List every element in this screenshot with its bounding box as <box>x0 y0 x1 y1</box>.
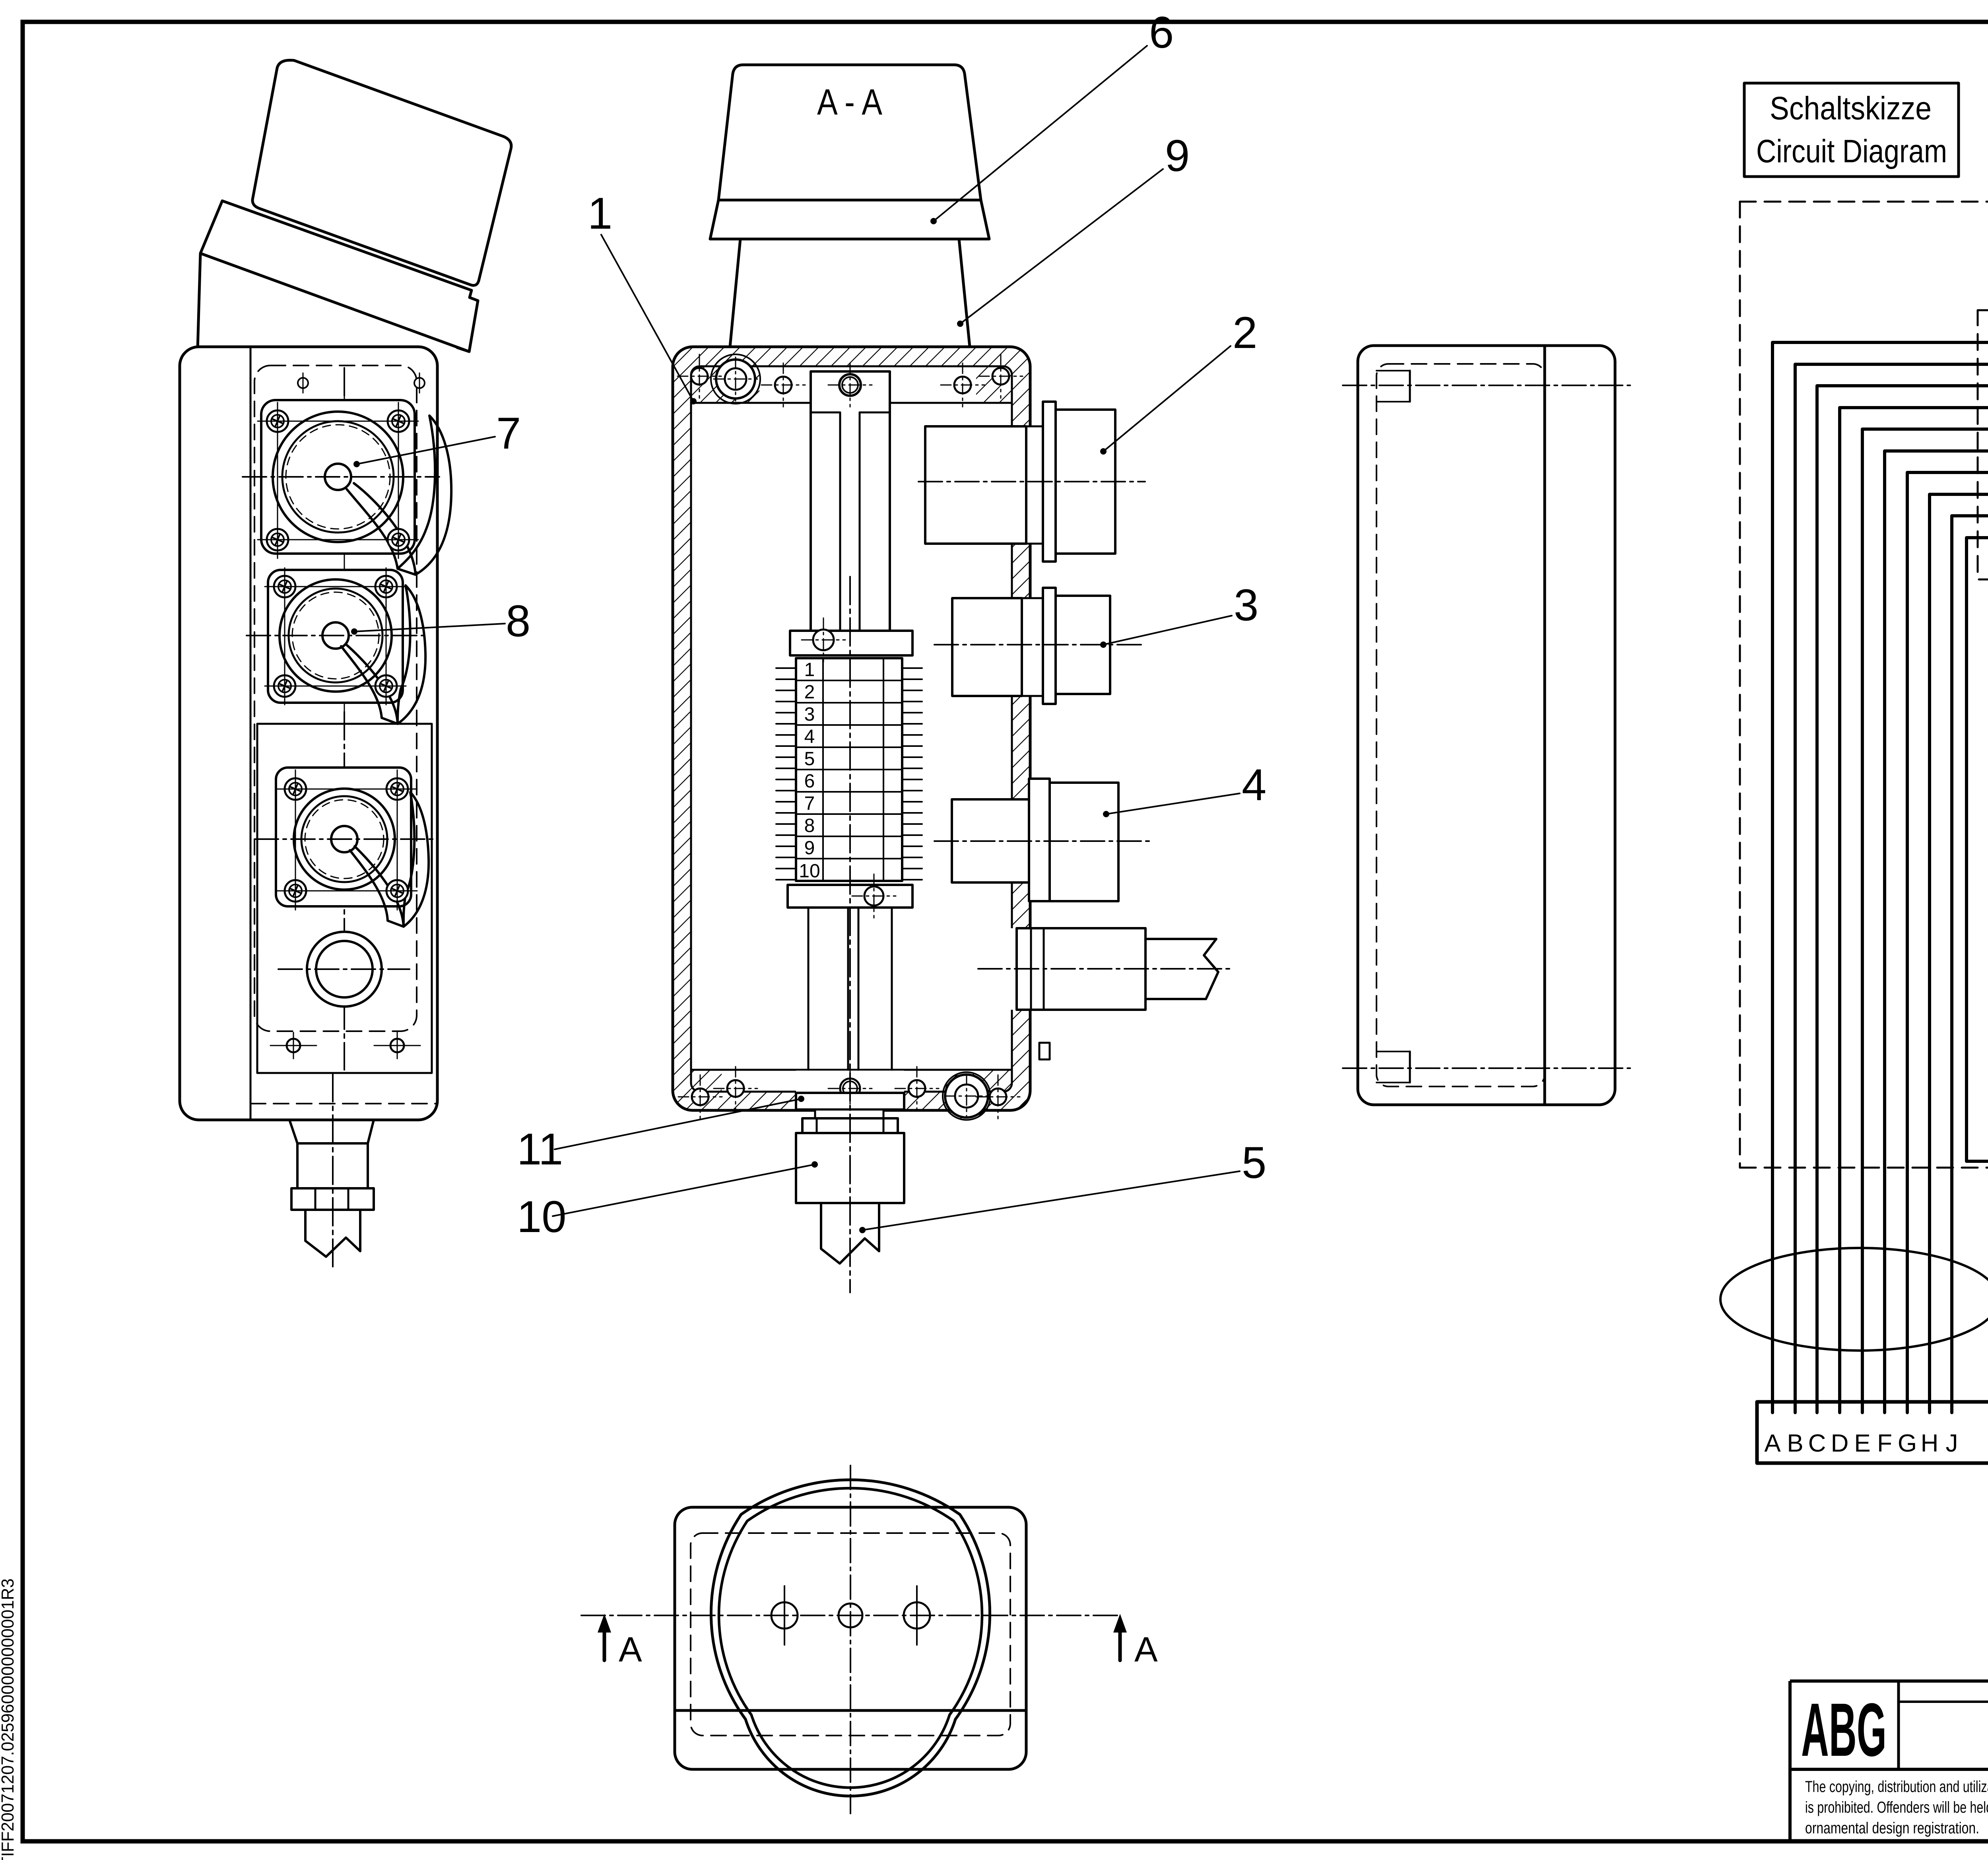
svg-text:4: 4 <box>804 726 815 747</box>
svg-text:A: A <box>619 1630 642 1669</box>
svg-text:7: 7 <box>804 793 815 814</box>
svg-text:10: 10 <box>517 1192 567 1242</box>
svg-text:1: 1 <box>804 659 815 680</box>
svg-text:7: 7 <box>496 408 521 458</box>
svg-text:H: H <box>1921 1430 1939 1457</box>
svg-text:J: J <box>1946 1430 1958 1457</box>
svg-text:5: 5 <box>804 748 815 770</box>
svg-text:Schaltskizze: Schaltskizze <box>1770 90 1932 126</box>
svg-text:2: 2 <box>804 682 815 703</box>
svg-text:5: 5 <box>1242 1138 1266 1188</box>
svg-text:6: 6 <box>1149 8 1174 57</box>
svg-text:8: 8 <box>804 815 815 836</box>
svg-text:1: 1 <box>588 189 612 238</box>
svg-text:9: 9 <box>804 838 815 859</box>
svg-text:ornamental design registration: ornamental design registration. <box>1805 1819 1979 1837</box>
svg-text:2: 2 <box>1233 308 1257 358</box>
svg-text:D: D <box>1831 1430 1849 1457</box>
svg-text:A: A <box>1134 1630 1158 1669</box>
svg-text:The copying, distribution and: The copying, distribution and utilizatio… <box>1805 1778 1988 1796</box>
svg-text:9: 9 <box>1165 131 1190 181</box>
svg-text:G: G <box>1898 1430 1917 1457</box>
svg-text:A - A: A - A <box>817 82 883 122</box>
svg-text:3: 3 <box>804 704 815 725</box>
svg-text:ABG: ABG <box>1801 1688 1887 1772</box>
svg-text:3: 3 <box>1234 580 1258 630</box>
svg-text:11: 11 <box>517 1124 563 1174</box>
svg-text:is prohibited. Offenders will: is prohibited. Offenders will be held li… <box>1805 1799 1988 1816</box>
svg-text:10: 10 <box>799 861 820 882</box>
svg-text:C: C <box>1808 1430 1826 1457</box>
svg-text:F: F <box>1877 1430 1892 1457</box>
svg-text:Circuit Diagram: Circuit Diagram <box>1756 133 1947 169</box>
svg-text:6: 6 <box>804 771 815 792</box>
svg-text:8: 8 <box>506 596 530 646</box>
svg-text:E: E <box>1854 1430 1870 1457</box>
svg-text:4: 4 <box>1242 760 1266 810</box>
svg-text:A: A <box>1764 1430 1781 1457</box>
svg-text:TIFF20071207.0259600000000001R: TIFF20071207.0259600000000001R3 <box>0 1578 17 1860</box>
svg-text:B: B <box>1787 1430 1803 1457</box>
